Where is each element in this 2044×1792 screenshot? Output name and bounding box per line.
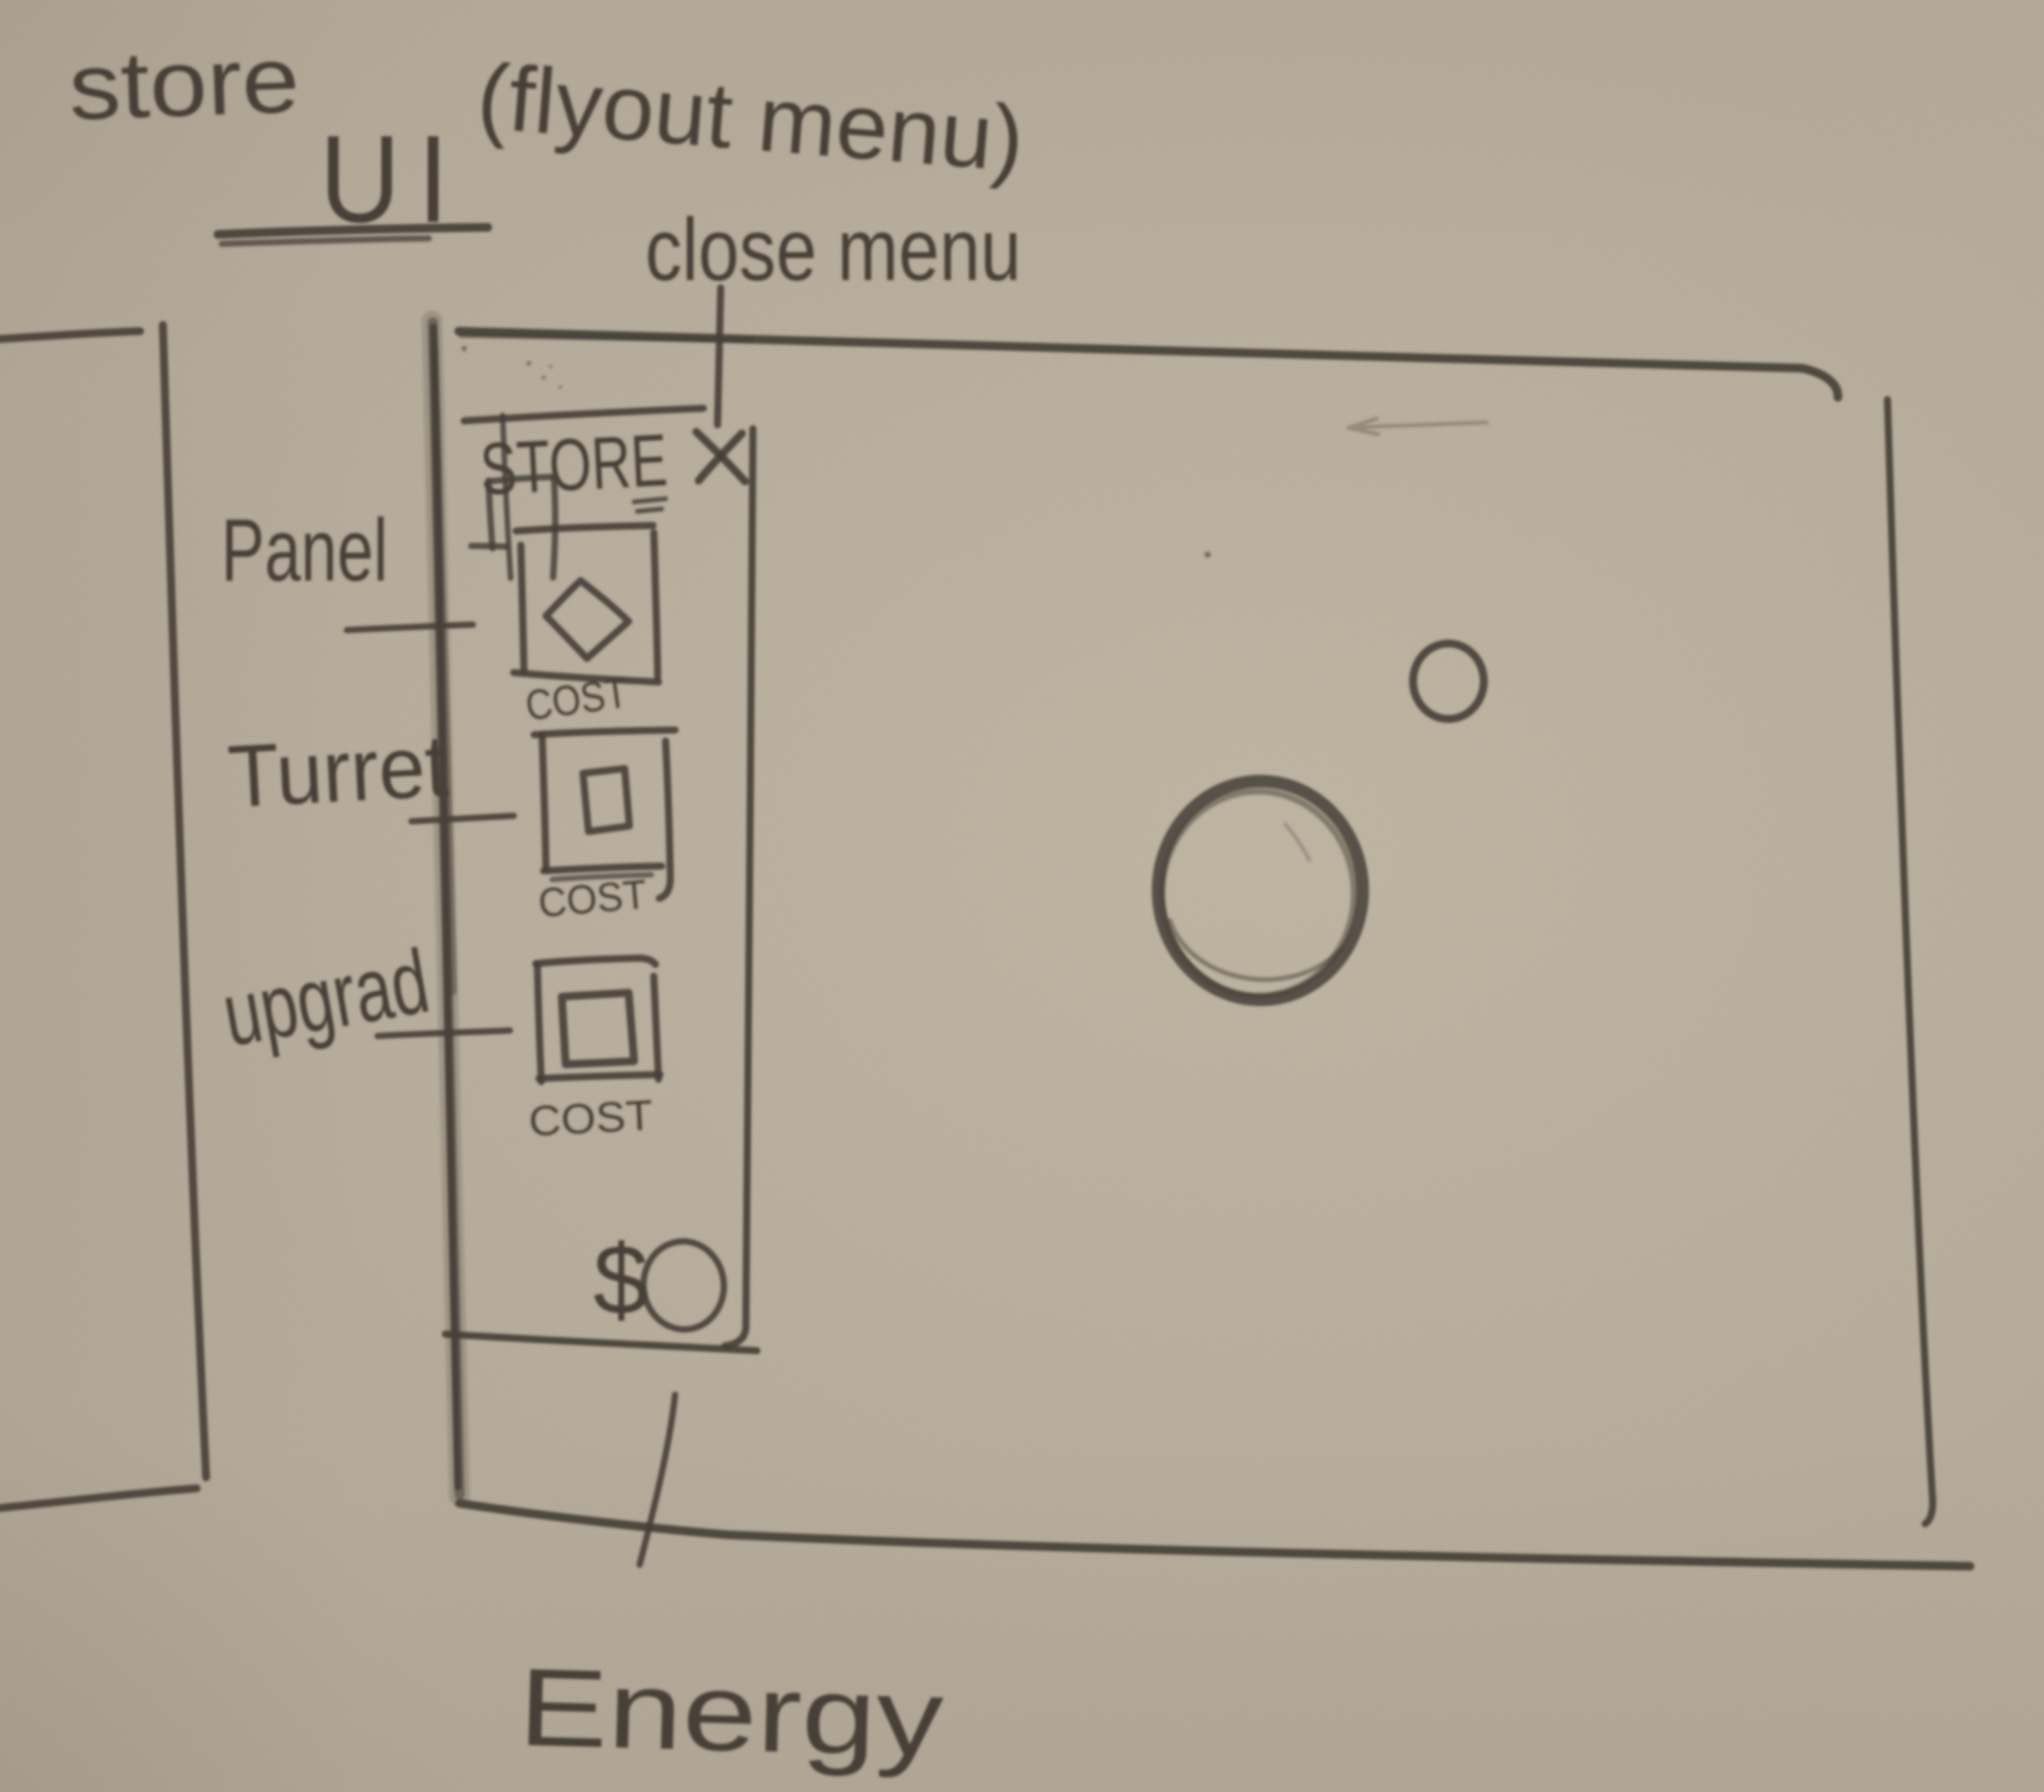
svg-text:close menu: close menu (645, 201, 1021, 299)
svg-text:COST: COST (527, 1092, 654, 1145)
svg-text:STORE: STORE (478, 419, 670, 511)
svg-text:Energy: Energy (517, 1645, 945, 1779)
svg-text:store: store (67, 27, 301, 140)
svg-text:Turret: Turret (226, 716, 451, 825)
svg-text:Panel: Panel (221, 501, 388, 599)
svg-text:$: $ (593, 1224, 648, 1335)
svg-text:COST: COST (537, 872, 649, 927)
